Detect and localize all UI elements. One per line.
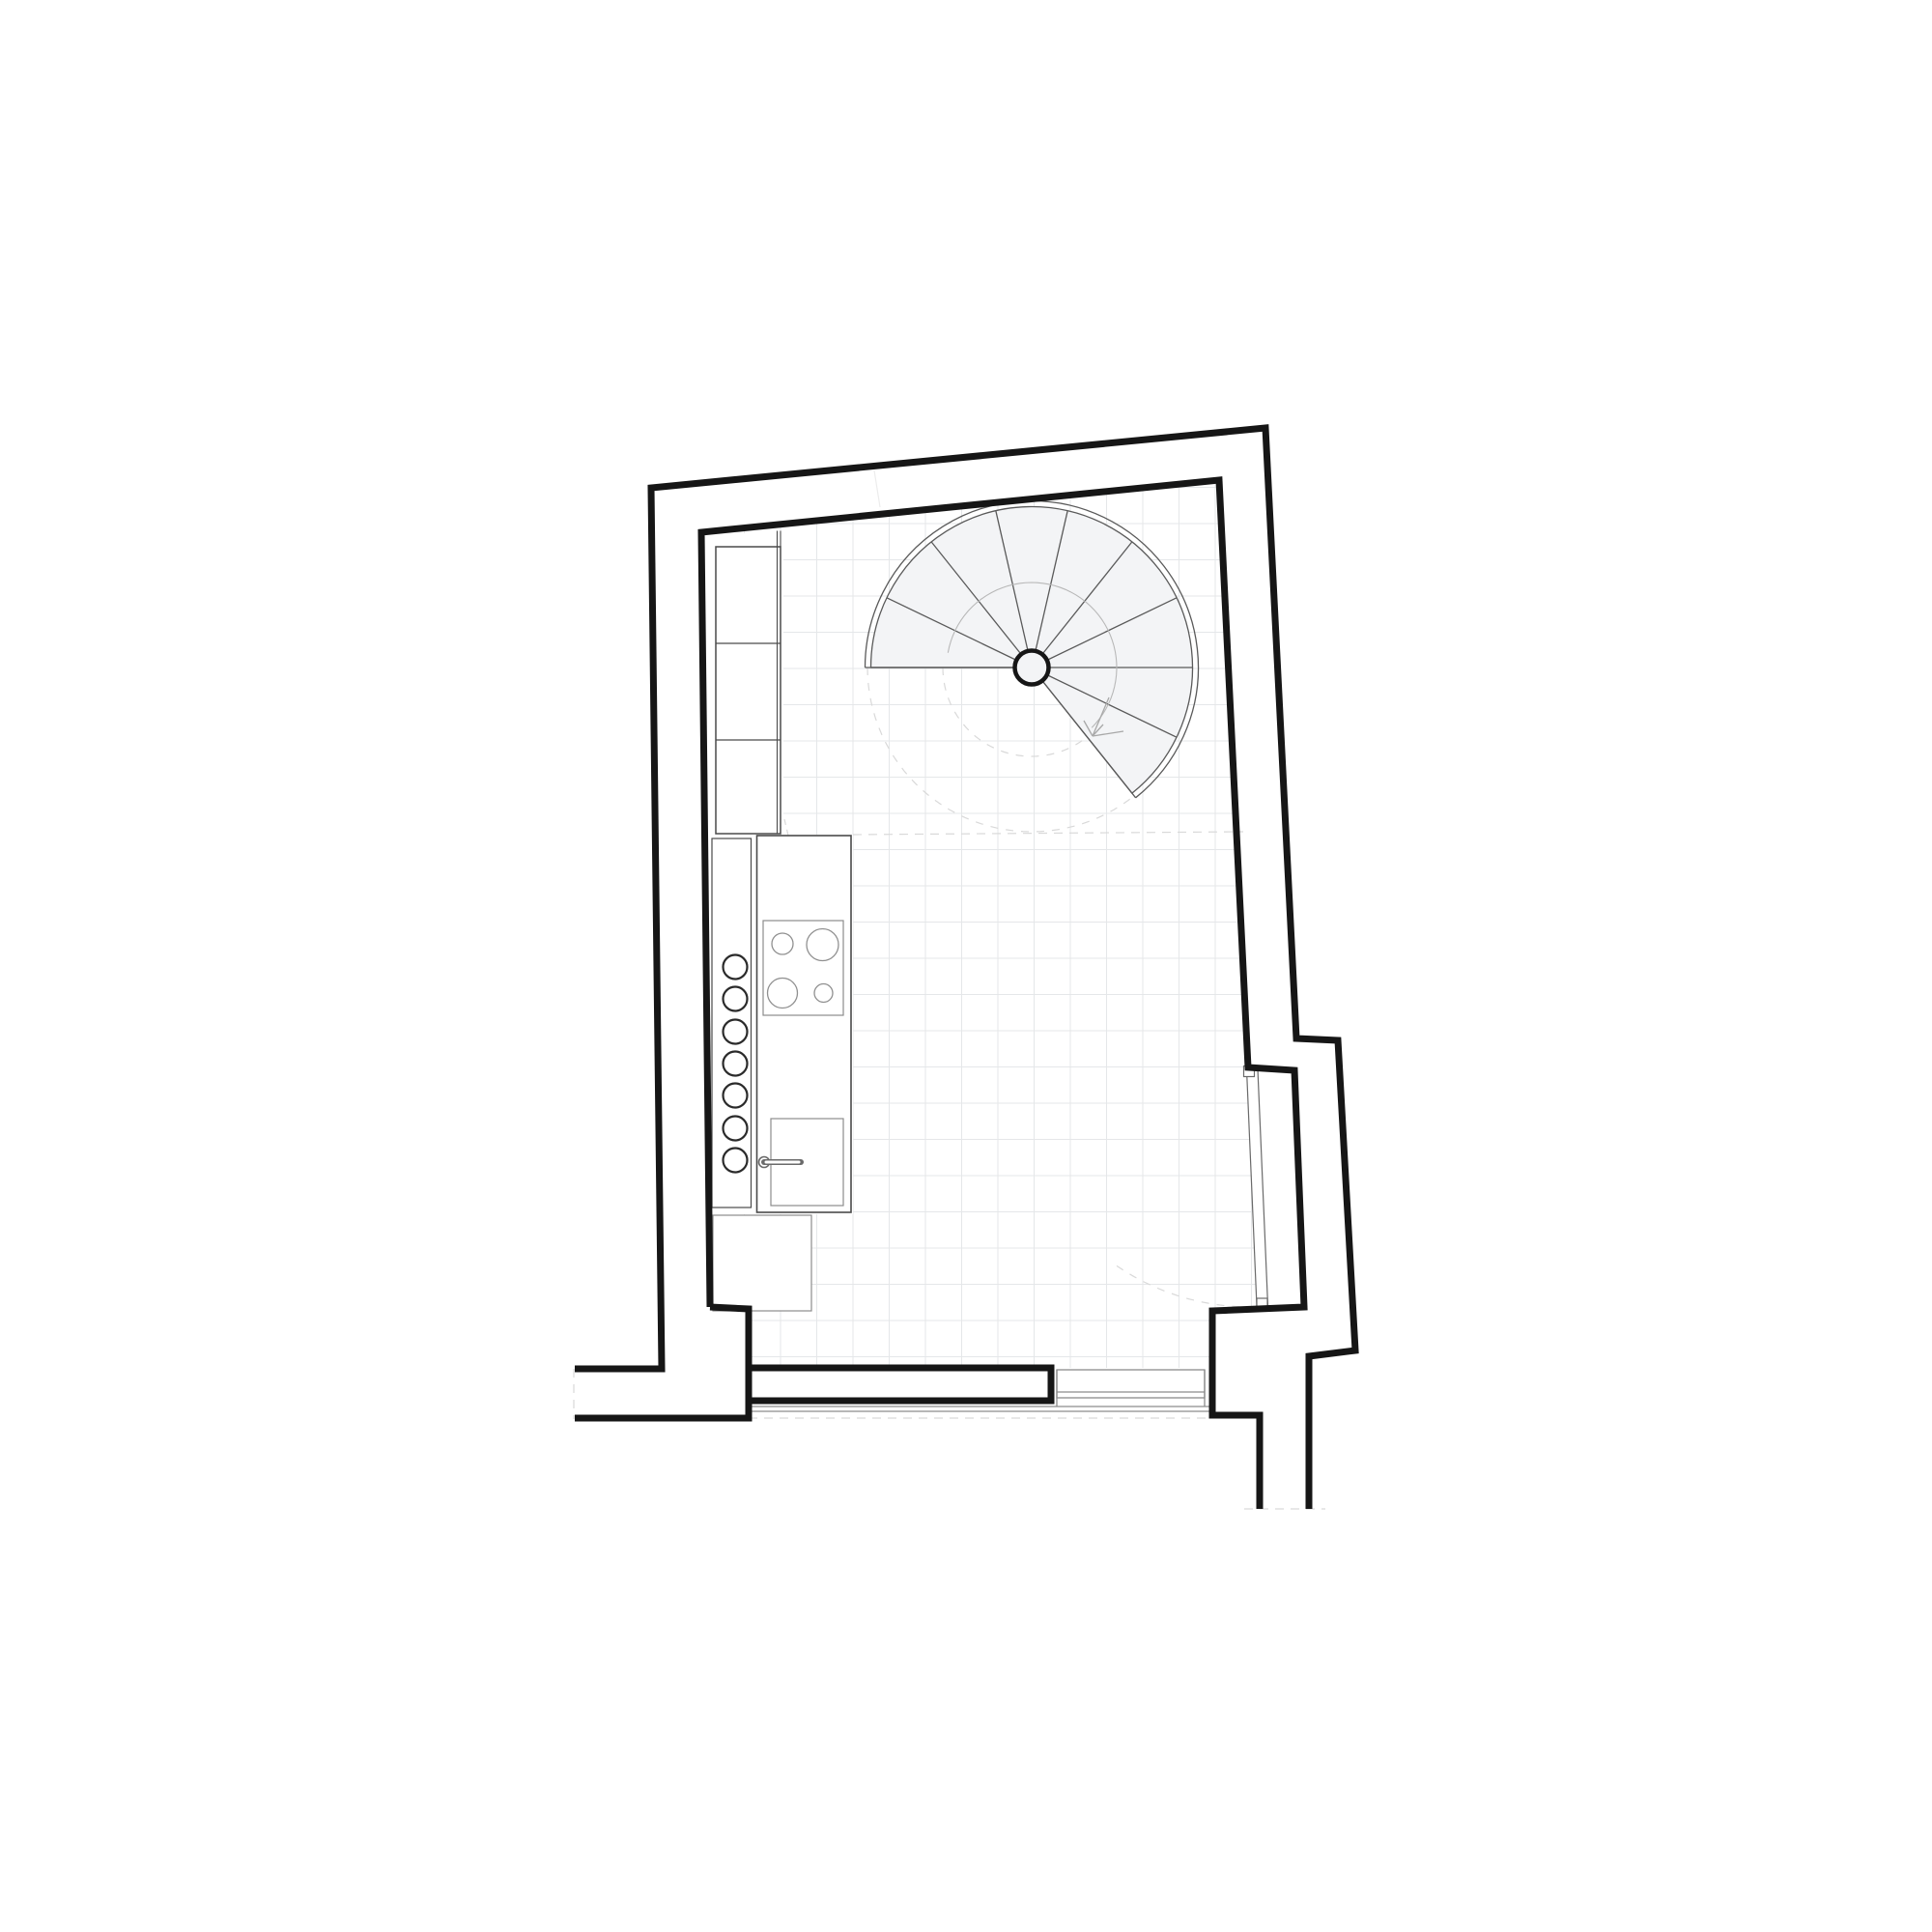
window-band [1057,1370,1205,1398]
burner-small-tl [772,933,793,954]
bottle-rack-hole-1 [724,955,748,980]
bottle-rack-hole-3 [724,1020,748,1044]
bottle-rack-hole-2 [724,987,748,1011]
plan-canvas [0,0,1932,1932]
appliance-below-counter [713,1215,811,1311]
burner-large-tr [807,929,838,961]
background [0,0,1932,1932]
tall-cabinet [716,547,781,834]
bottle-rack-hole-7 [724,1149,748,1173]
floor-plan [0,0,1932,1932]
burner-small-br [814,984,833,1003]
stair-center-post [1015,651,1049,685]
bottle-rack-hole-4 [724,1052,748,1076]
bottle-rack-hole-6 [724,1117,748,1141]
bottle-rack-hole-5 [724,1084,748,1108]
burner-large-bl [768,979,798,1009]
